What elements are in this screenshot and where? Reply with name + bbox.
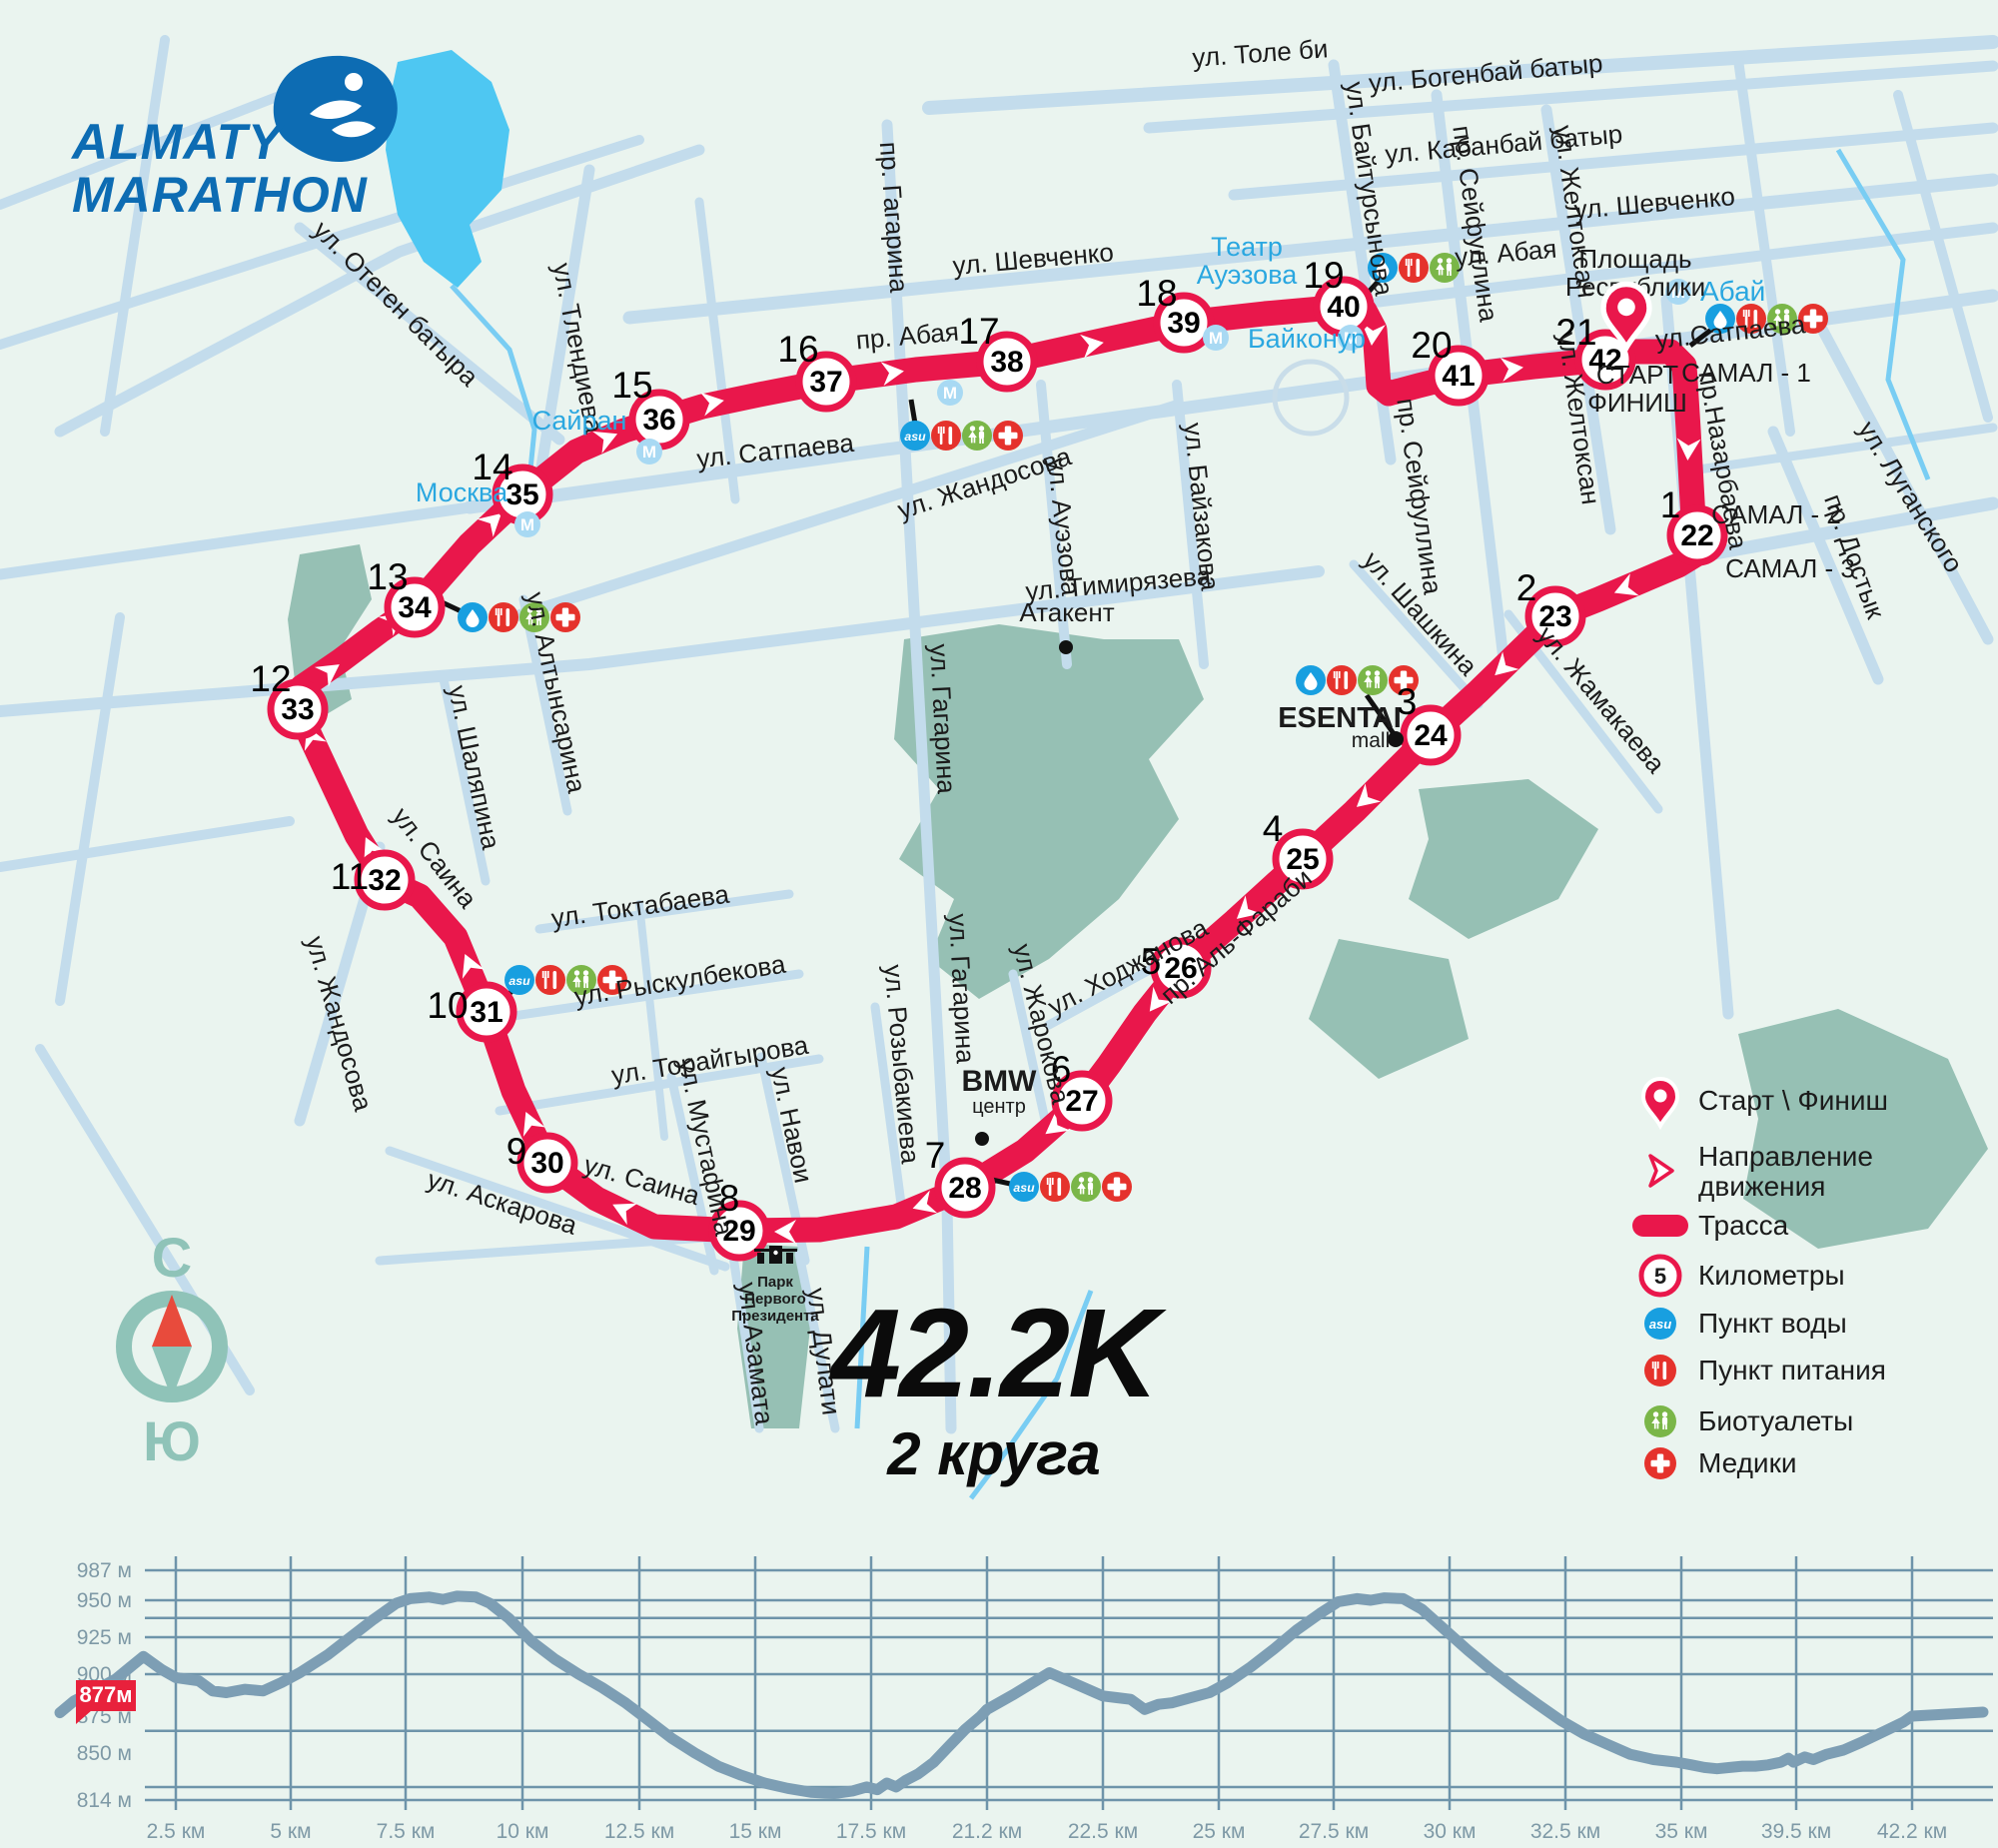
place-label: САМАЛ - 3: [1725, 553, 1855, 583]
x-axis-label: 2.5 км: [147, 1820, 206, 1843]
wc-figure: [583, 970, 588, 975]
place-label: СТАРТ: [1596, 360, 1678, 390]
legend-label: Пункт питания: [1698, 1355, 1886, 1386]
metro-station-name: Абай: [1700, 276, 1765, 307]
legend-label: Трасса: [1698, 1210, 1789, 1241]
wc-figure: [979, 432, 984, 440]
lap-km-number: 10: [427, 985, 468, 1026]
wc-figure: [1378, 683, 1380, 688]
asu-logo: asu: [1013, 1181, 1035, 1195]
lap-km-number: 17: [958, 311, 999, 352]
place-label: ФИНИШ: [1587, 388, 1687, 418]
km-number: 24: [1414, 719, 1448, 752]
wc-figure: [1080, 1189, 1082, 1194]
x-axis-label: 12.5 км: [604, 1820, 674, 1843]
compass-south-letter: Ю: [143, 1409, 201, 1472]
fork-tine: [1652, 1362, 1654, 1369]
knife-icon: [506, 608, 510, 626]
knife-icon: [1058, 1178, 1062, 1196]
wc-figure: [1088, 1183, 1093, 1191]
wc-figure: [1447, 258, 1452, 263]
place-dot: [1388, 731, 1404, 747]
food-point-icon: [1644, 1355, 1676, 1386]
wc-figure: [574, 970, 579, 975]
fork-tine: [1047, 1178, 1049, 1185]
place-label: Атакент: [1019, 597, 1114, 627]
place-label: BMW: [962, 1065, 1038, 1098]
lap-km-number: 4: [1263, 808, 1284, 849]
fork-tine: [1406, 259, 1408, 266]
place-label: mall: [1352, 729, 1391, 752]
y-axis-label: 987 м: [77, 1559, 132, 1582]
wc-figure: [1662, 1417, 1667, 1425]
fork-tine: [1657, 1362, 1659, 1369]
asu-logo: asu: [1649, 1317, 1672, 1332]
lap-km-number: 13: [367, 556, 408, 597]
legend-label: Биотуалеты: [1698, 1405, 1853, 1436]
metro-letter: М: [943, 384, 957, 403]
wc-figure: [1088, 1177, 1093, 1182]
food-point-icon: [1327, 665, 1357, 695]
place-label: центр: [972, 1096, 1026, 1118]
km-number: 30: [530, 1147, 563, 1180]
legend-item-med: Медики: [1644, 1447, 1796, 1479]
cross-icon: [1804, 316, 1823, 322]
pin-hole: [1654, 1090, 1667, 1103]
distance-title: 42.2K 2 круга: [694, 1291, 1294, 1484]
legend-label: Медики: [1698, 1447, 1796, 1478]
event-logo: ALMATY MARATHON: [72, 116, 368, 222]
pin-hole: [1617, 299, 1635, 317]
fork-tine: [940, 427, 942, 434]
x-axis-label: 5 км: [270, 1820, 311, 1843]
almaty-marathon-course-map: asuasuasu2212322432542652762872983093110…: [0, 0, 1998, 1848]
knife-icon: [1345, 671, 1349, 689]
x-axis-label: 17.5 км: [836, 1820, 906, 1843]
fork-tine: [1411, 259, 1413, 266]
km-number: 32: [368, 864, 401, 897]
wc-figure: [1083, 1189, 1085, 1194]
x-axis-label: 32.5 км: [1530, 1820, 1600, 1843]
lap-km-number: 7: [925, 1135, 946, 1176]
wc-figure: [1367, 682, 1369, 687]
y-axis-label: 850 м: [77, 1742, 132, 1765]
laps-count: 2 круга: [694, 1424, 1294, 1484]
place-label: Сайран: [532, 406, 627, 436]
fork-tine: [498, 608, 499, 615]
asu-logo: asu: [904, 430, 926, 444]
km-sample: 5: [1654, 1264, 1666, 1289]
wc-figure: [1370, 682, 1372, 687]
fork-tine: [1339, 671, 1341, 678]
fork-tine: [1049, 1178, 1051, 1185]
map-canvas: asuasuasu2212322432542652762872983093110…: [0, 0, 1998, 1848]
place-label: Байконур: [1248, 324, 1366, 354]
wc-figure: [974, 438, 976, 443]
food-point-icon: [931, 421, 961, 451]
toilets-icon: [1071, 1172, 1101, 1202]
place-label: Театр: [1211, 232, 1283, 262]
cross-icon: [1651, 1460, 1670, 1466]
lap-km-number: 19: [1303, 255, 1344, 296]
legend-item-km: 5Километры: [1641, 1257, 1845, 1295]
wc-figure: [1447, 264, 1452, 272]
legend-label: движения: [1698, 1171, 1825, 1202]
cross-icon: [556, 614, 575, 620]
food-point-icon: [489, 602, 518, 632]
lap-km-number: 11: [331, 856, 369, 897]
knife-icon: [553, 971, 557, 989]
legend-label: Старт \ Финиш: [1698, 1085, 1888, 1116]
lap-km-number: 2: [1516, 567, 1537, 608]
fork-handle: [1336, 677, 1339, 689]
wc-figure: [979, 426, 984, 431]
wc-figure: [1088, 1190, 1090, 1195]
wc-figure: [1450, 271, 1452, 276]
gate-part: [786, 1253, 793, 1264]
wc-figure: [982, 439, 984, 444]
fork-tine: [496, 608, 498, 615]
wc-figure: [1442, 270, 1444, 275]
wc-figure: [1439, 270, 1441, 275]
legend-label: Пункт воды: [1698, 1308, 1847, 1339]
x-axis-label: 35 км: [1655, 1820, 1708, 1843]
wc-figure: [971, 438, 973, 443]
km-number: 31: [470, 996, 502, 1029]
place-label: САМАЛ - 1: [1681, 358, 1811, 388]
fork-handle: [1049, 1184, 1052, 1196]
fork-tine: [938, 427, 940, 434]
x-axis-label: 15 км: [729, 1820, 782, 1843]
place-label: Парк: [757, 1274, 793, 1291]
wc-figure: [1665, 1424, 1667, 1429]
metro-letter: М: [520, 515, 534, 534]
asu-logo: asu: [508, 974, 530, 988]
wc-figure: [1366, 670, 1371, 675]
fork-handle: [1654, 1368, 1657, 1380]
wc-figure: [1662, 1411, 1667, 1416]
food-point-icon: [535, 965, 565, 995]
logo-line2: MARATHON: [72, 169, 368, 222]
x-axis-label: 25 км: [1193, 1820, 1246, 1843]
track-icon: [1632, 1215, 1688, 1237]
lap-km-number: 12: [250, 658, 291, 699]
wc-figure: [1079, 1177, 1084, 1182]
fork-tine: [1334, 671, 1336, 678]
fork-tine: [1336, 671, 1338, 678]
distance-value: 42.2K: [694, 1291, 1294, 1416]
fork-tine: [547, 971, 549, 978]
logo-line1: ALMATY: [72, 116, 368, 169]
wc-figure: [1662, 1424, 1664, 1429]
fork-tine: [1654, 1362, 1656, 1369]
gate-part: [757, 1253, 764, 1264]
knife-icon: [1417, 259, 1421, 277]
fork-tine: [1052, 1178, 1054, 1185]
toilets-icon: [962, 421, 992, 451]
metro-letter: М: [642, 443, 656, 462]
toilets-icon: [1358, 665, 1388, 695]
place-label: Площадь: [1578, 244, 1691, 274]
gate-part: [773, 1251, 777, 1255]
food-point-icon: [1040, 1172, 1070, 1202]
wc-figure: [1375, 676, 1380, 684]
metro-letter: М: [1209, 329, 1223, 348]
place-label: Ауэзова: [1197, 260, 1299, 290]
lap-km-number: 15: [611, 365, 652, 406]
lap-km-number: 1: [1660, 484, 1681, 525]
wc-figure: [1375, 683, 1377, 688]
fork-tine: [544, 971, 546, 978]
toilets-icon: [1644, 1405, 1676, 1437]
start-elevation-value: 877м: [80, 1682, 133, 1707]
y-axis-label: 950 м: [77, 1589, 132, 1612]
lap-km-number: 20: [1411, 325, 1452, 366]
wc-figure: [970, 426, 975, 431]
y-axis-label: 814 м: [77, 1789, 132, 1812]
fork-handle: [544, 977, 547, 989]
x-axis-label: 7.5 км: [377, 1820, 436, 1843]
knife-icon: [949, 427, 953, 445]
fork-tine: [1408, 259, 1410, 266]
lap-km-number: 16: [777, 329, 818, 370]
fork-handle: [940, 433, 943, 445]
wc-figure: [1657, 1423, 1659, 1428]
wc-figure: [1654, 1423, 1656, 1428]
fork-tine: [542, 971, 544, 978]
x-axis-label: 27.5 км: [1299, 1820, 1369, 1843]
place-dot: [975, 1132, 989, 1146]
fork-tine: [943, 427, 945, 434]
cross-icon: [999, 433, 1018, 439]
wc-figure: [1653, 1411, 1658, 1416]
wc-figure: [1091, 1190, 1093, 1195]
fork-handle: [498, 614, 500, 626]
x-axis-label: 21.2 км: [952, 1820, 1022, 1843]
cross-icon: [1108, 1184, 1127, 1190]
lap-km-number: 18: [1136, 273, 1177, 314]
place-label: САМАЛ - 2: [1711, 499, 1841, 529]
km-number: 37: [809, 366, 842, 399]
x-axis-label: 22.5 км: [1068, 1820, 1138, 1843]
fork-handle: [1408, 265, 1411, 277]
x-axis-label: 30 км: [1424, 1820, 1477, 1843]
knife-icon: [1663, 1362, 1667, 1380]
wc-figure: [1438, 258, 1443, 263]
legend-label: Направление: [1698, 1141, 1873, 1172]
wc-figure: [1375, 670, 1380, 675]
km-number: 36: [642, 404, 675, 437]
legend-label: Километры: [1698, 1260, 1845, 1291]
fork-tine: [500, 608, 502, 615]
food-point-icon: [1399, 253, 1429, 283]
x-axis-label: 39.5 км: [1761, 1820, 1831, 1843]
place-dot: [1059, 640, 1073, 654]
y-axis-label: 925 м: [77, 1626, 132, 1649]
wc-figure: [1447, 271, 1449, 276]
lap-km-number: 9: [506, 1131, 527, 1172]
place-label: Москва: [416, 477, 508, 507]
x-axis-label: 42.2 км: [1877, 1820, 1947, 1843]
km-number: 22: [1680, 519, 1713, 552]
x-axis-label: 10 км: [497, 1820, 549, 1843]
compass-north-letter: С: [152, 1226, 192, 1289]
km-number: 28: [948, 1172, 981, 1205]
runner-head-icon: [345, 73, 363, 91]
wc-figure: [979, 439, 981, 444]
